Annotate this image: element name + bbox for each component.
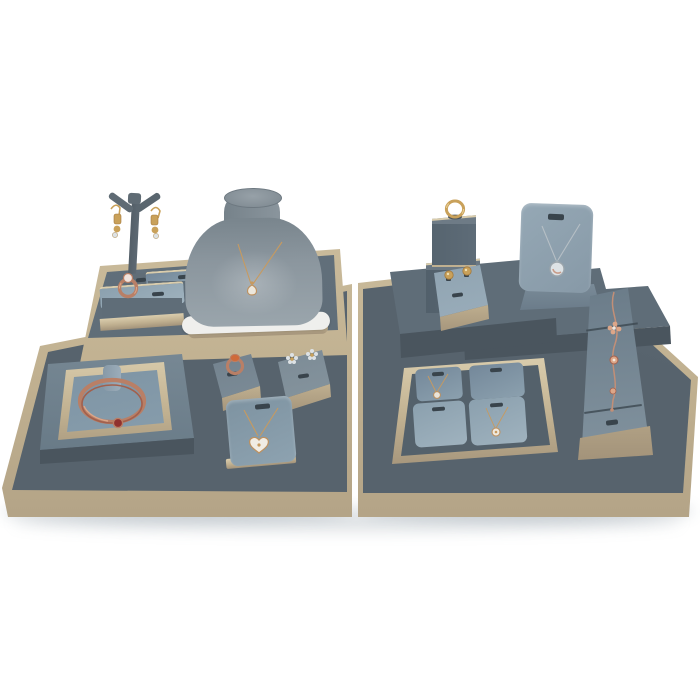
bracelet-ramp (570, 288, 662, 460)
flower-studs (278, 346, 326, 374)
gold-studs (436, 265, 484, 291)
flower-stud-left (286, 353, 298, 364)
charm-bracelet (590, 288, 650, 438)
bust-neck-top (224, 188, 282, 208)
heart-necklace (232, 402, 292, 460)
t-stand-apex (128, 193, 142, 205)
pendant-tray (392, 356, 562, 472)
tray-necklace-front-right (476, 404, 520, 444)
bangle-display (40, 352, 198, 464)
stud-pad-right (428, 263, 490, 335)
tray-pad-back-right-slot (490, 368, 502, 373)
drop-earrings (99, 205, 171, 253)
tower-upper-front (432, 224, 476, 267)
charm-flower (608, 322, 622, 335)
flower-stud-right (306, 349, 318, 360)
ring-stand-front-slot (152, 292, 164, 297)
pendant-pad-center (222, 396, 302, 474)
silver-necklace (528, 218, 592, 284)
tray-necklace-back-left (420, 372, 460, 406)
tower-gold-ring (438, 195, 472, 225)
bust-necklace (220, 228, 300, 298)
gem-ring (221, 350, 251, 380)
rose-ring (112, 268, 146, 302)
bangle (70, 370, 160, 438)
jewelry-display-photo (0, 0, 700, 700)
bust (180, 188, 335, 343)
